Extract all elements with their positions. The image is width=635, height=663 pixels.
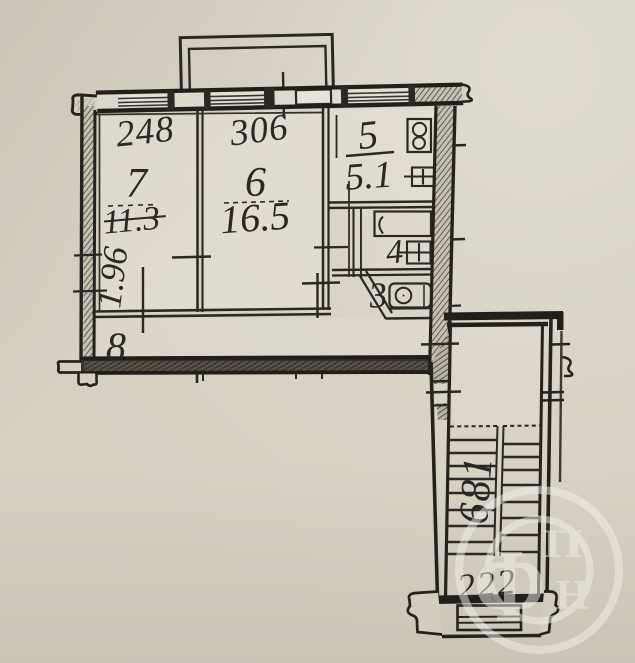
svg-text:16.5: 16.5: [218, 193, 291, 243]
svg-text:5.1: 5.1: [344, 153, 394, 198]
svg-text:1.96: 1.96: [89, 244, 135, 310]
svg-text:Н: Н: [556, 573, 589, 619]
svg-text:4: 4: [384, 233, 404, 271]
svg-text:3: 3: [366, 274, 388, 316]
svg-text:8: 8: [106, 324, 126, 369]
svg-text:П: П: [543, 523, 583, 567]
svg-text:248: 248: [114, 109, 176, 156]
svg-text:306: 306: [227, 107, 291, 155]
svg-text:Ф: Ф: [474, 528, 545, 643]
